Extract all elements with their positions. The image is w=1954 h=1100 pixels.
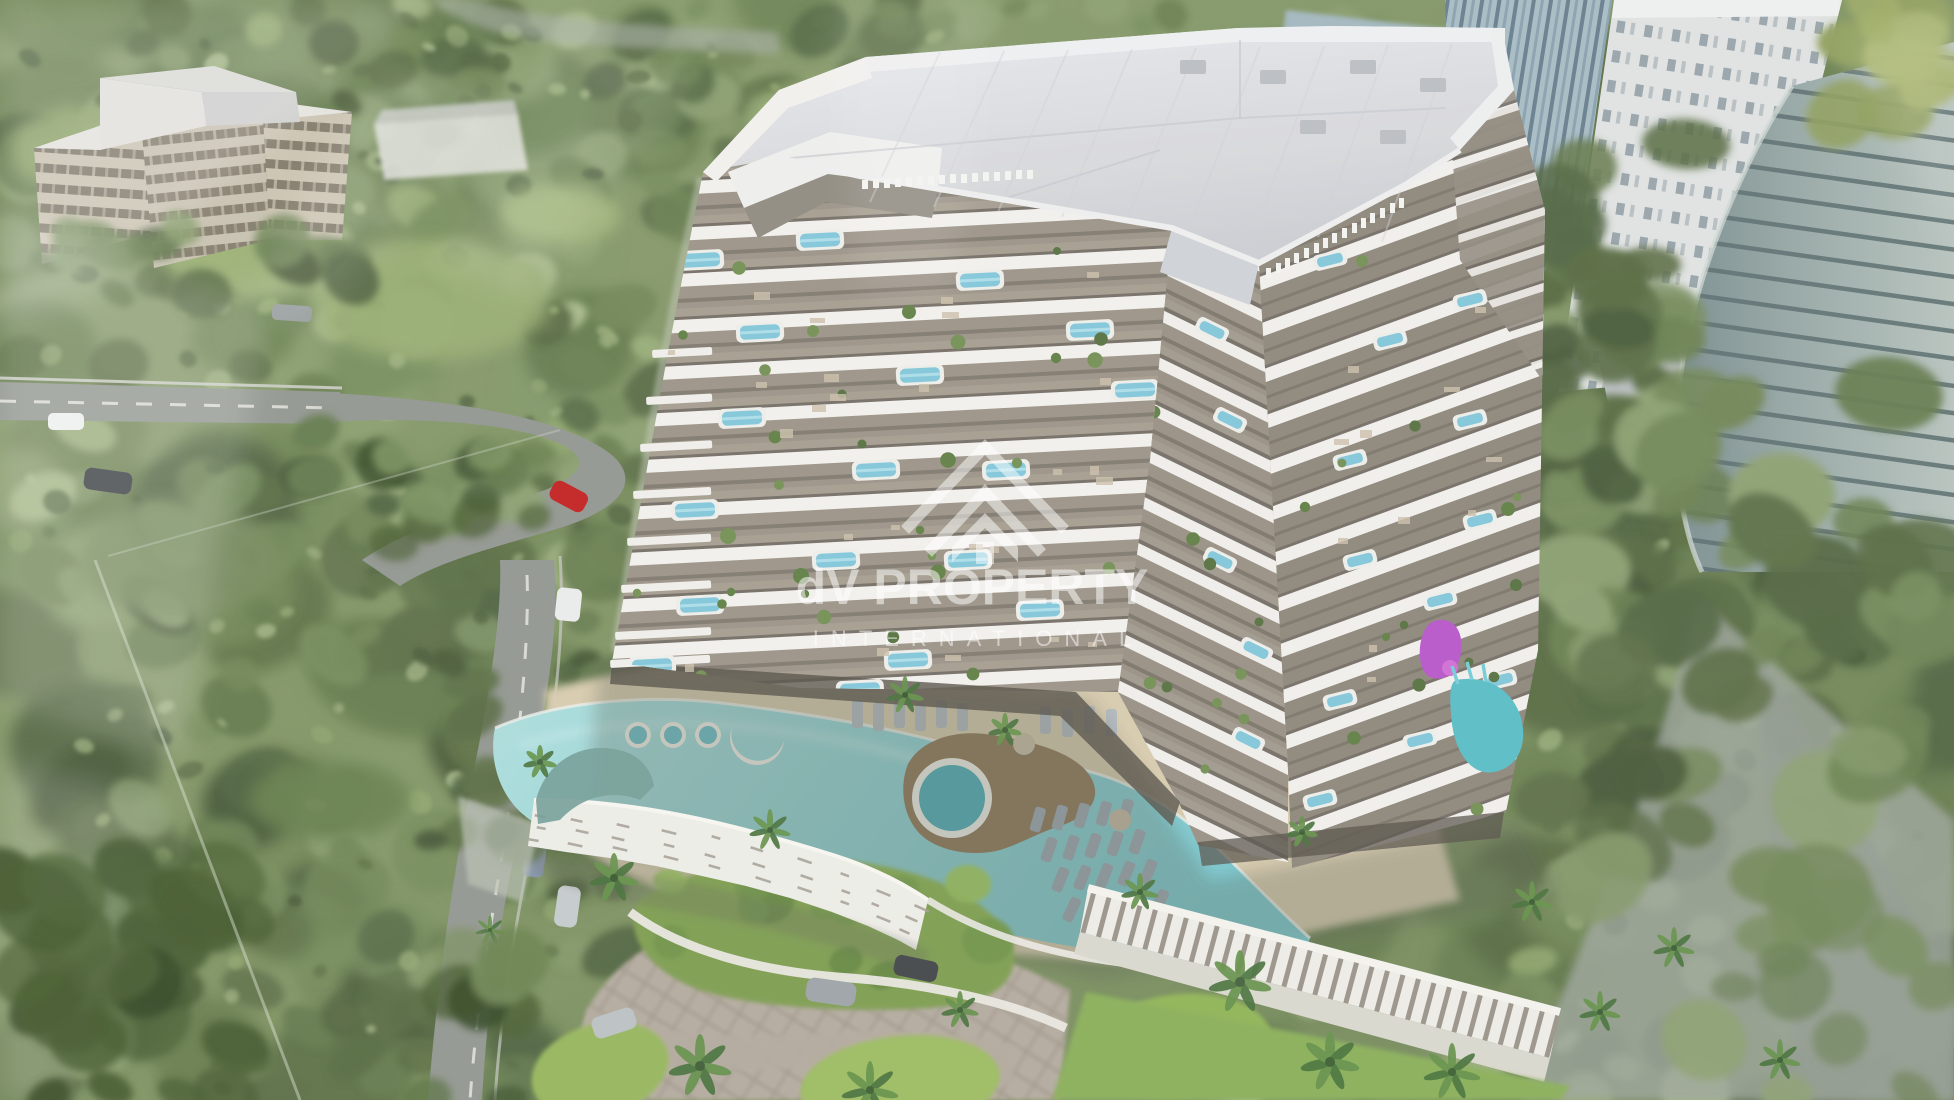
- svg-text:dV PROPERTY: dV PROPERTY: [796, 559, 1149, 615]
- svg-text:INTERNATIONAL: INTERNATIONAL: [813, 626, 1143, 651]
